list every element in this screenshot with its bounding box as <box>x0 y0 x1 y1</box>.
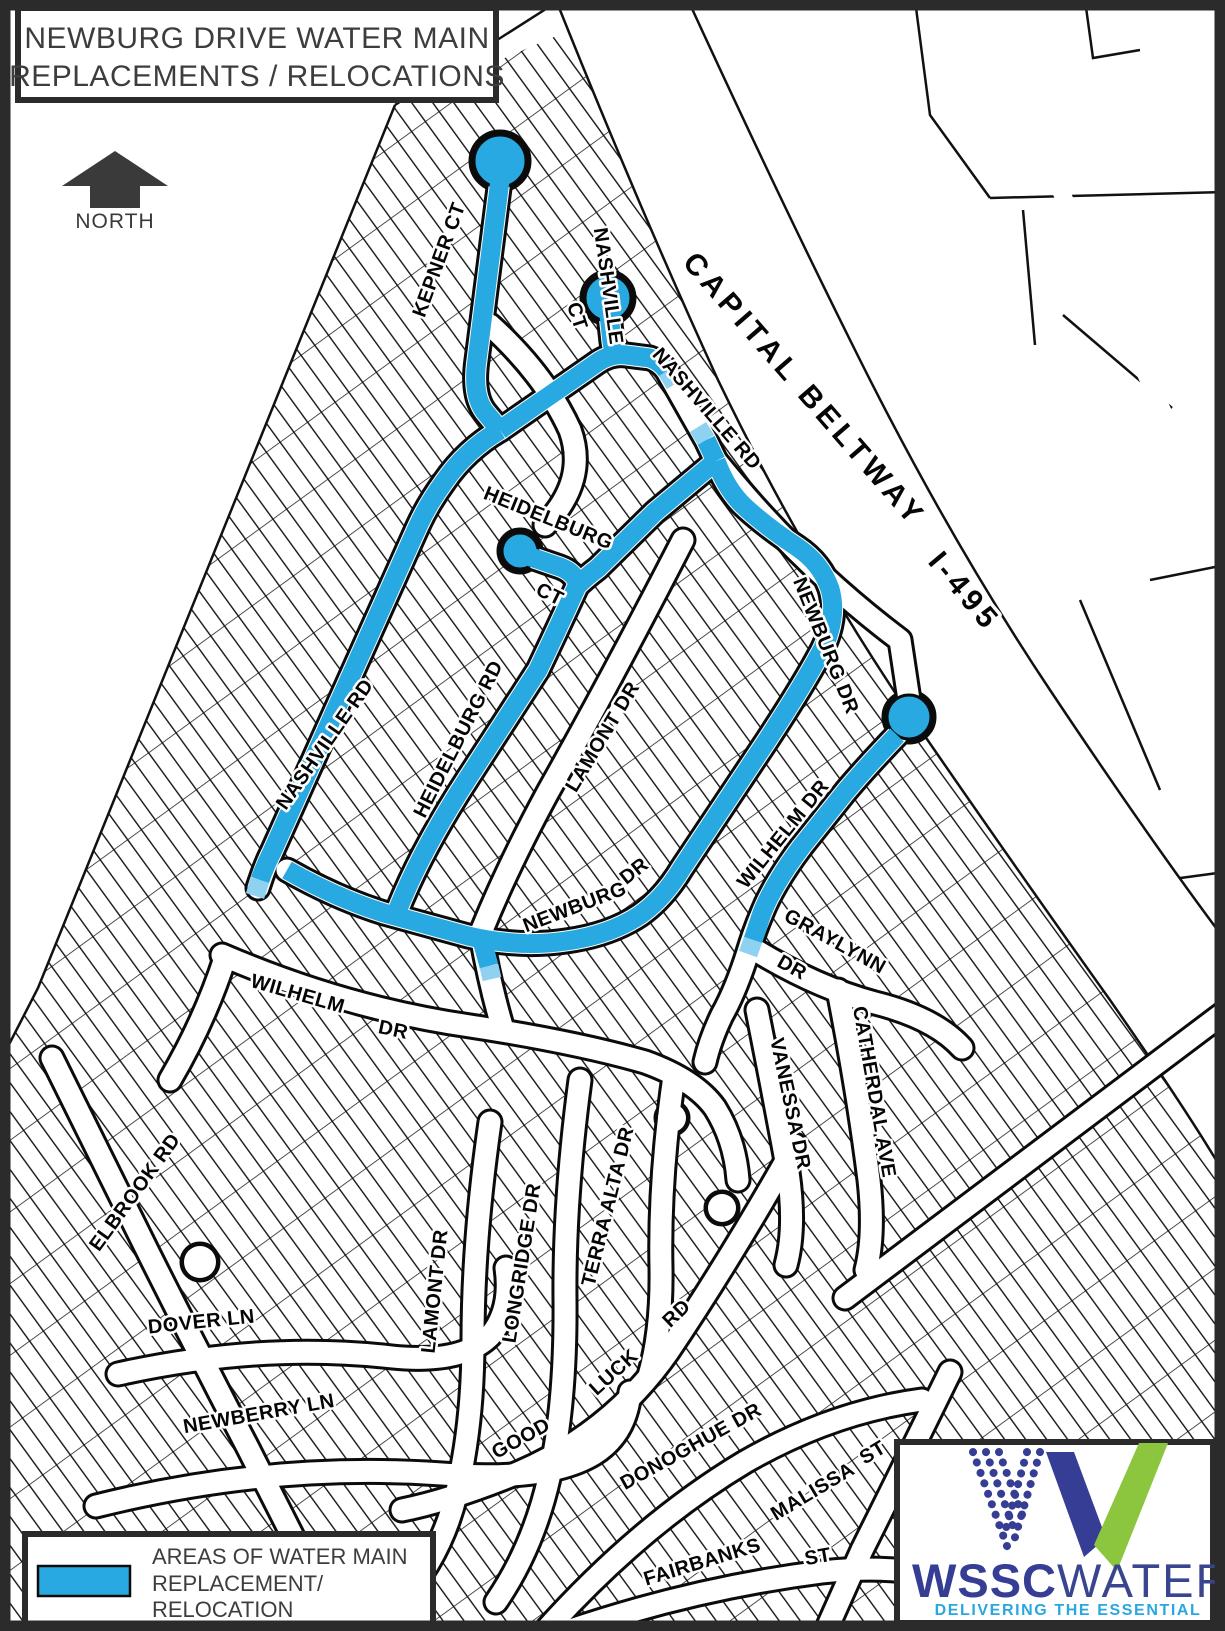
legend-line1: AREAS OF WATER MAIN <box>152 1544 407 1569</box>
map-title-line2: REPLACEMENTS / RELOCATIONS <box>9 60 505 93</box>
legend-box: AREAS OF WATER MAIN REPLACEMENT/ RELOCAT… <box>25 1534 433 1625</box>
logo-wssc-text: WSSC <box>912 1554 1057 1607</box>
north-label: NORTH <box>75 210 154 233</box>
map-canvas: KEPNER CT NASHVILLE CT NASHVILLE RD CAPI… <box>0 0 1225 1631</box>
title-box: NEWBURG DRIVE WATER MAIN REPLACEMENTS / … <box>9 8 505 100</box>
legend-swatch <box>38 1566 130 1596</box>
legend-line3: RELOCATION <box>152 1597 293 1622</box>
street-label-fairbanks-st: ST <box>803 1544 833 1570</box>
logo-water-text: WATER <box>1057 1554 1225 1607</box>
map-page: KEPNER CT NASHVILLE CT NASHVILLE RD CAPI… <box>0 0 1225 1631</box>
legend-line2: REPLACEMENT/ <box>152 1571 324 1596</box>
logo-box: WSSC WATER DELIVERING THE ESSENTIAL <box>897 1442 1225 1623</box>
map-title-line1: NEWBURG DRIVE WATER MAIN <box>24 22 489 55</box>
cul-de-sac-kepner <box>474 135 526 187</box>
logo-tagline: DELIVERING THE ESSENTIAL <box>935 1602 1202 1619</box>
